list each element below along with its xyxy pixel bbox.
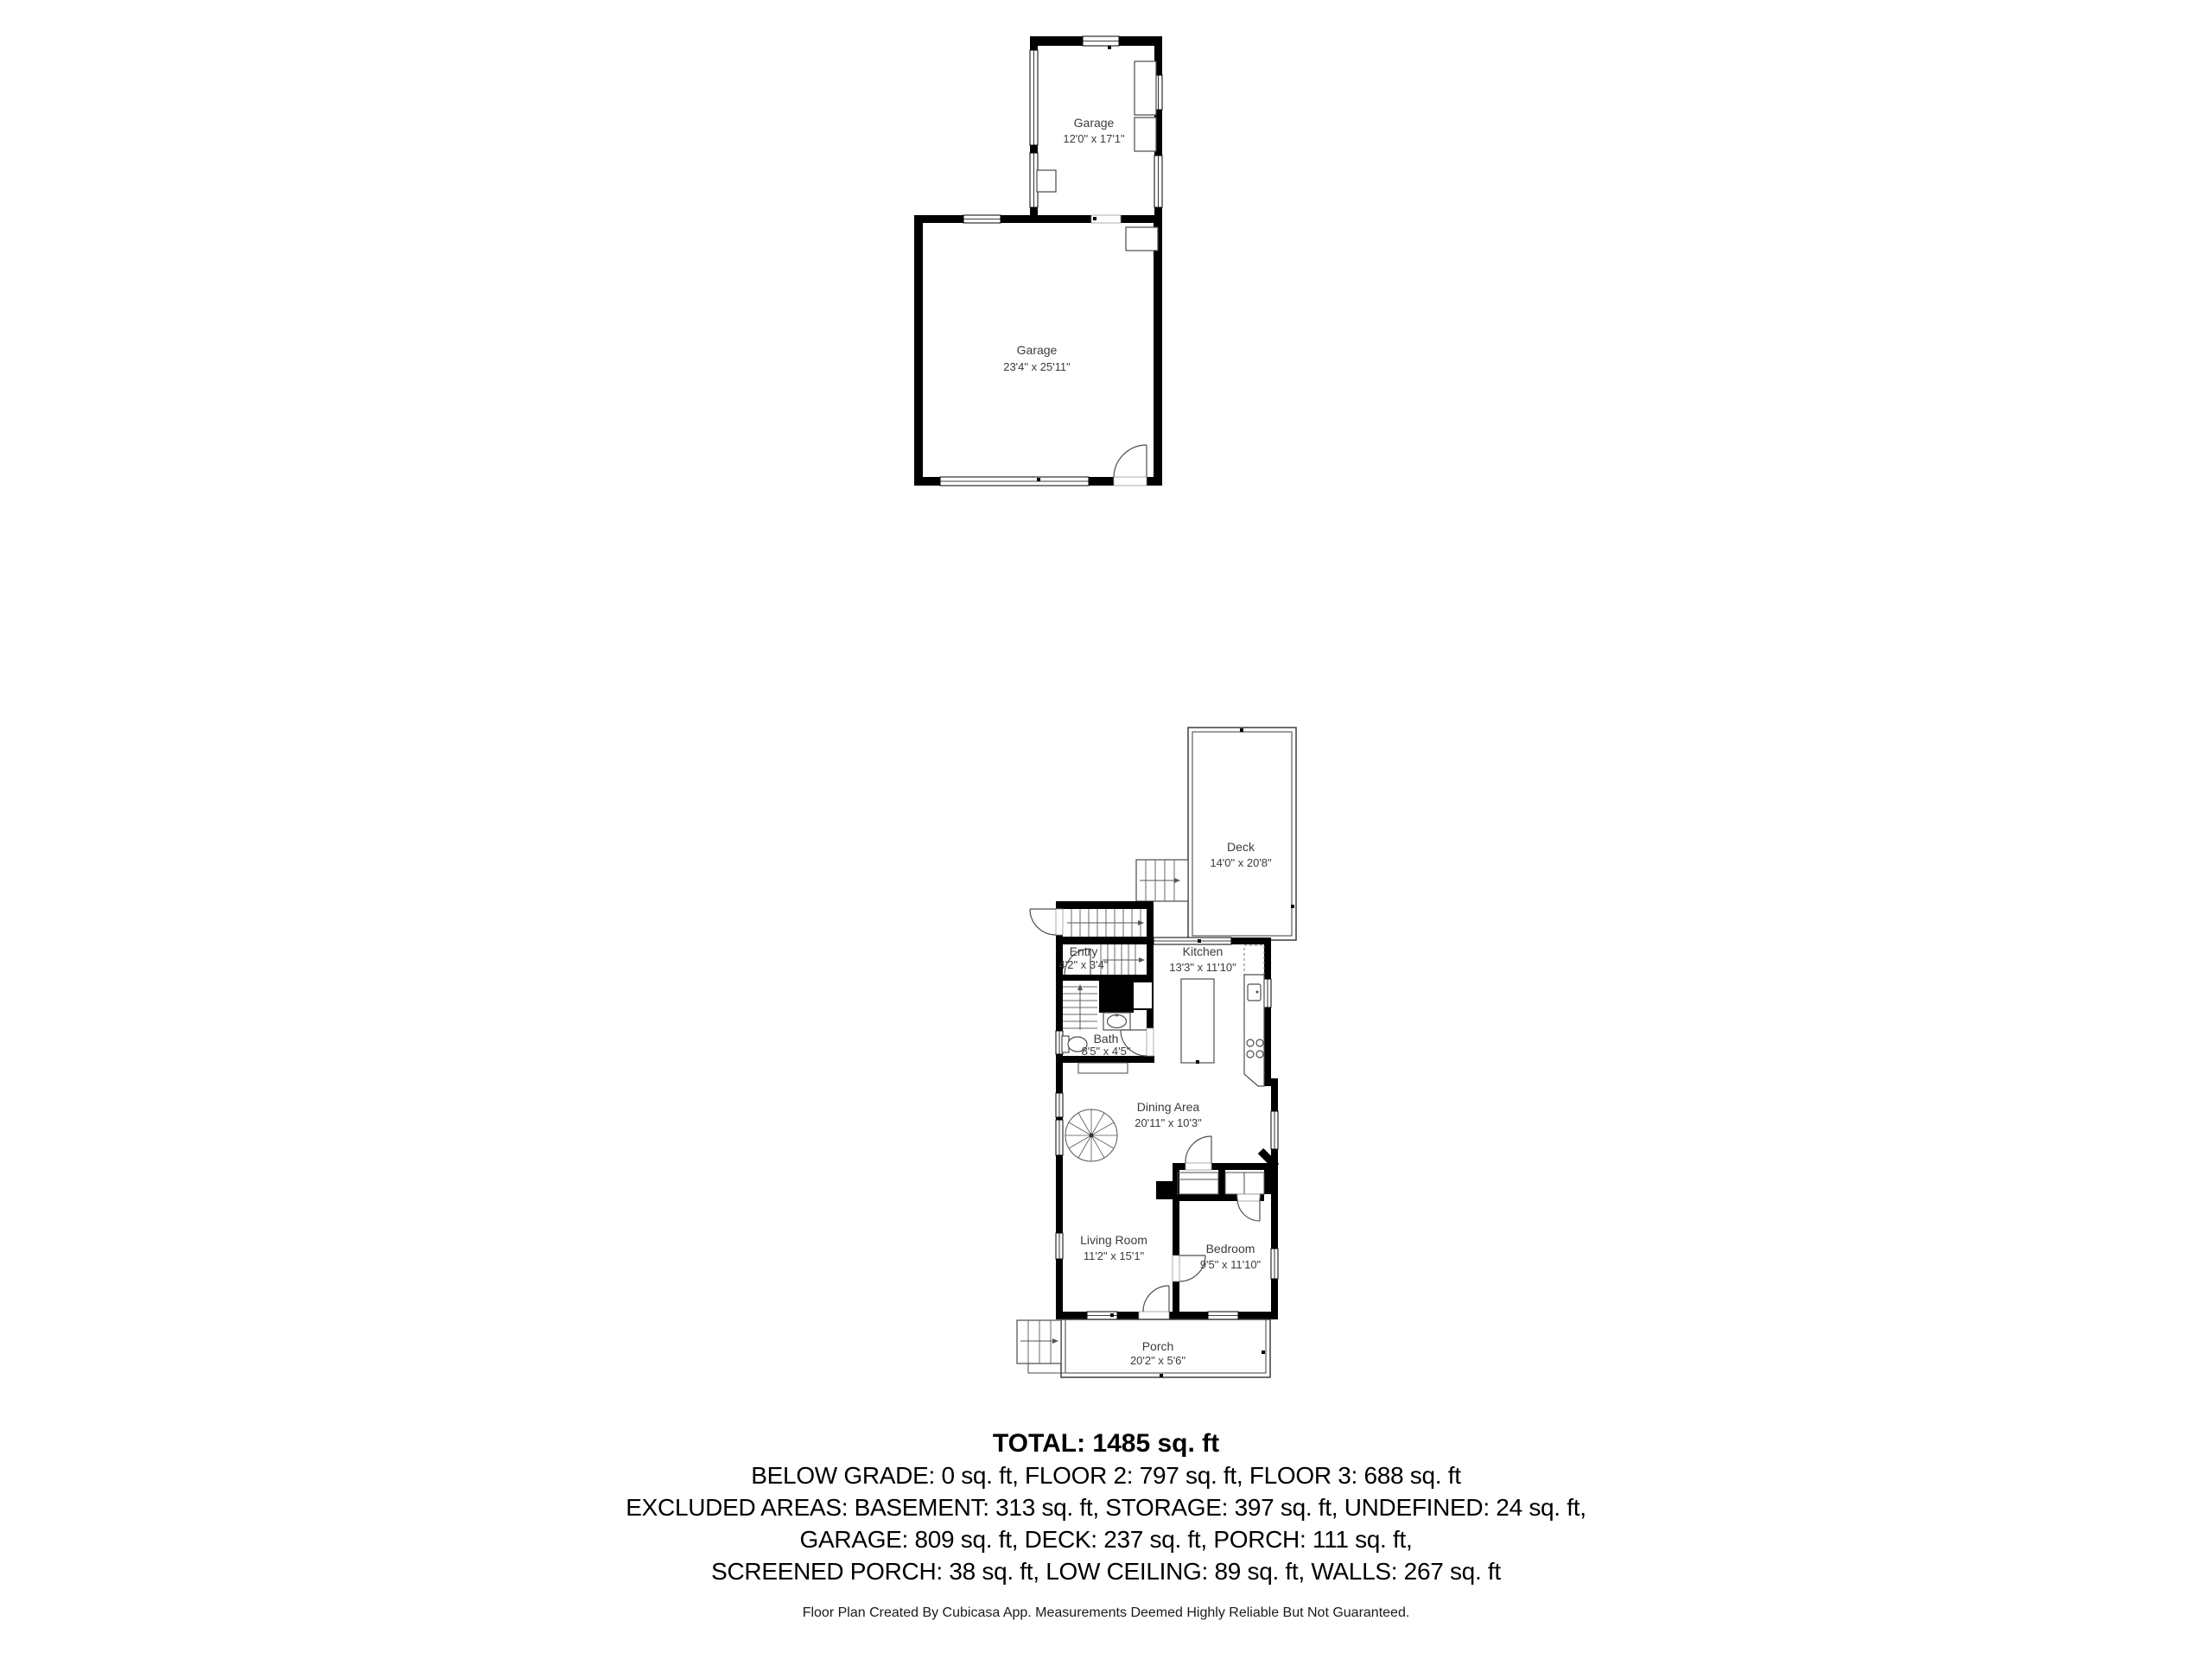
room-dims-dining: 20'11" x 10'3" xyxy=(1135,1116,1202,1129)
kitchen-room: Kitchen 13'3" x 11'10" xyxy=(1169,939,1264,1086)
garage-entry-door xyxy=(1114,445,1147,486)
room-dims-living: 11'2" x 15'1" xyxy=(1084,1249,1145,1262)
chimney xyxy=(1099,981,1134,1013)
porch-steps xyxy=(1017,1320,1065,1373)
room-dims-garage-small: 12'0" x 17'1" xyxy=(1063,132,1125,145)
wall-ticks xyxy=(915,46,1162,481)
room-label-deck: Deck xyxy=(1227,840,1255,854)
room-label-porch: Porch xyxy=(1142,1339,1174,1353)
dining-hall-door xyxy=(1185,1136,1211,1170)
room-dims-garage-large: 23'4" x 25'11" xyxy=(1003,360,1071,373)
area-summary: TOTAL: 1485 sq. ft BELOW GRADE: 0 sq. ft… xyxy=(0,1427,2212,1621)
bedroom-room: Bedroom 9'5" x 11'10" xyxy=(1173,1242,1262,1281)
room-dims-entry: 4'2" x 3'4" xyxy=(1059,958,1109,971)
spiral-staircase xyxy=(1065,1109,1117,1161)
deck-stairs xyxy=(1136,860,1188,901)
summary-line-1: BELOW GRADE: 0 sq. ft, FLOOR 2: 797 sq. … xyxy=(0,1459,2212,1491)
upper-cabinets xyxy=(1244,945,1264,975)
deck-outline xyxy=(1188,728,1296,940)
room-label-bath: Bath xyxy=(1094,1032,1119,1046)
floor-plan-page: { "plans": { "garage": { "small": {"name… xyxy=(0,0,2212,1659)
disclaimer-text: Floor Plan Created By Cubicasa App. Meas… xyxy=(0,1605,2212,1621)
room-label-dining: Dining Area xyxy=(1137,1100,1200,1114)
main-floor-plan: Entry 4'2" x 3'4" xyxy=(1017,728,1296,1377)
summary-line-2: EXCLUDED AREAS: BASEMENT: 313 sq. ft, ST… xyxy=(0,1491,2212,1523)
room-label-bedroom: Bedroom xyxy=(1206,1242,1255,1255)
room-label-living: Living Room xyxy=(1080,1233,1147,1247)
garage-building-plan: Garage 12'0" x 17'1" Garage 23'4" x 25'1… xyxy=(914,36,1162,486)
room-dims-kitchen: 13'3" x 11'10" xyxy=(1169,961,1236,974)
basement-stairs xyxy=(1063,985,1097,1030)
garage-door xyxy=(940,477,1089,486)
garage-windows xyxy=(963,36,1162,223)
porch-outline: Porch 20'2" x 5'6" xyxy=(1017,1319,1270,1377)
room-label-entry: Entry xyxy=(1070,944,1098,958)
entry-room: Entry 4'2" x 3'4" xyxy=(1059,944,1144,975)
stairwell xyxy=(1067,909,1143,937)
room-label-garage-small: Garage xyxy=(1074,116,1115,130)
bath-vanity-sink xyxy=(1103,1013,1130,1030)
closet-door xyxy=(1237,1194,1260,1221)
refrigerator xyxy=(1133,982,1153,1009)
bench xyxy=(1078,1063,1128,1073)
summary-line-4: SCREENED PORCH: 38 sq. ft, LOW CEILING: … xyxy=(0,1555,2212,1587)
floor-plan-canvas: Garage 12'0" x 17'1" Garage 23'4" x 25'1… xyxy=(0,0,2212,1659)
entry-exterior-door xyxy=(1030,909,1063,935)
room-label-garage-large: Garage xyxy=(1017,343,1058,357)
summary-line-3: GARAGE: 809 sq. ft, DECK: 237 sq. ft, PO… xyxy=(0,1523,2212,1555)
dining-room: Dining Area 20'11" x 10'3" xyxy=(1065,1100,1211,1170)
room-dims-bath: 8'5" x 4'5" xyxy=(1082,1045,1131,1058)
room-dims-bedroom: 9'5" x 11'10" xyxy=(1200,1258,1262,1271)
room-dims-deck: 14'0" x 20'8" xyxy=(1210,856,1272,869)
living-room: Living Room 11'2" x 15'1" xyxy=(1080,1233,1147,1262)
room-dims-porch: 20'2" x 5'6" xyxy=(1130,1354,1185,1367)
closet-a xyxy=(1178,1173,1218,1194)
kitchen-sink-icon xyxy=(1248,984,1261,1001)
kitchen-island xyxy=(1181,979,1214,1063)
room-label-kitchen: Kitchen xyxy=(1183,944,1224,958)
total-area-text: TOTAL: 1485 sq. ft xyxy=(0,1427,2212,1459)
